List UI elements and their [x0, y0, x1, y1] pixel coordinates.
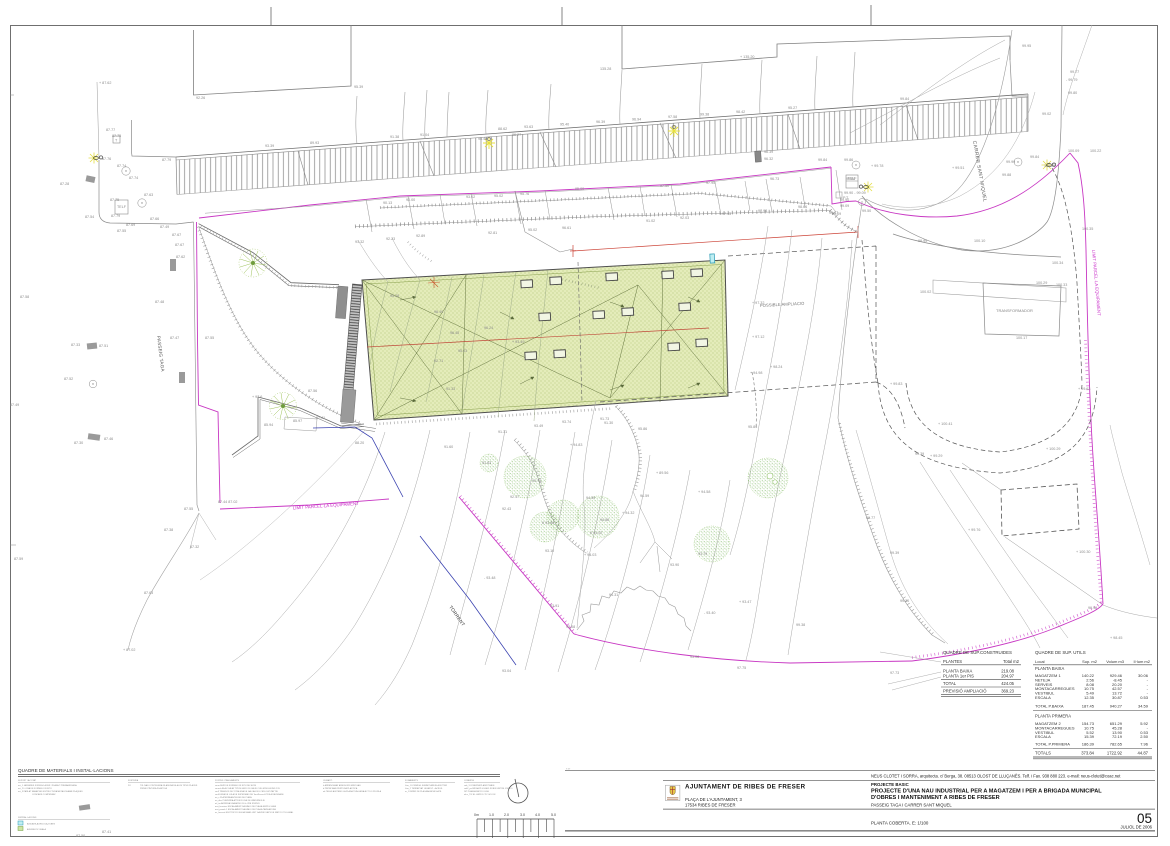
svg-text:96.32: 96.32	[764, 157, 773, 161]
svg-text:87.79: 87.79	[162, 158, 171, 162]
svg-text:99.50: 99.50	[862, 209, 871, 213]
svg-text:95.02: 95.02	[494, 194, 503, 198]
svg-text:204.97: 204.97	[1001, 674, 1014, 679]
svg-text:TOTALS: TOTALS	[1035, 751, 1051, 756]
svg-text:92.71: 92.71	[434, 359, 443, 363]
svg-text:Volum m3: Volum m3	[1106, 659, 1125, 664]
svg-text:99.77: 99.77	[829, 211, 838, 215]
svg-text:186.39: 186.39	[1082, 742, 1095, 747]
svg-text:QUADRE DE MATERIALS I INSTAL·L: QUADRE DE MATERIALS I INSTAL·LACIONS	[18, 768, 114, 773]
svg-text:92.81: 92.81	[488, 231, 497, 235]
svg-text:100.25: 100.25	[1044, 164, 1055, 168]
svg-text:135.28: 135.28	[600, 67, 611, 71]
svg-text:94.31: 94.31	[609, 593, 618, 597]
svg-text:87.55: 87.55	[184, 507, 193, 511]
svg-text:97.58: 97.58	[668, 115, 677, 119]
svg-text:P.T.: P.T.	[843, 196, 849, 200]
svg-text:+ 98.24: + 98.24	[770, 365, 782, 369]
svg-text:+ 97.32: + 97.32	[752, 301, 764, 305]
svg-text:D'OBRES I MANTENIMENT A RIBES: D'OBRES I MANTENIMENT A RIBES DE FRESER	[871, 795, 1000, 801]
svg-text:95.03: 95.03	[458, 349, 467, 353]
svg-text:ESCALA: ESCALA	[1035, 734, 1051, 739]
svg-text:PLANTA 1er PIS: PLANTA 1er PIS	[943, 674, 974, 679]
svg-text:+ 94.98: + 94.98	[750, 371, 762, 375]
svg-text:+ 93.47: + 93.47	[739, 600, 751, 604]
svg-text:COBERTA: COBERTA	[464, 779, 474, 782]
svg-text:95.02: 95.02	[528, 228, 537, 232]
svg-text:+ 99.78: + 99.78	[871, 164, 883, 168]
svg-text:87.49: 87.49	[160, 225, 169, 229]
svg-text:87.47: 87.47	[170, 336, 179, 340]
svg-text:97.73: 97.73	[890, 671, 899, 675]
svg-text:100.34: 100.34	[1052, 261, 1063, 265]
svg-text:+ 89.56: + 89.56	[656, 471, 668, 475]
svg-text:95.84: 95.84	[748, 425, 757, 429]
svg-text:98.42: 98.42	[736, 110, 745, 114]
svg-text:87.52: 87.52	[64, 377, 73, 381]
svg-text:ml_ter ARRISSA UNA AIRSO: ml_ter ARRISSA UNA AIRSO 30 ls VRE STATU…	[215, 802, 260, 805]
svg-text:6 93.88: 6 93.88	[542, 521, 554, 525]
svg-text:cob_3 COBERTA PLADRITXADE: cob_3 COBERTA PLADRITXADE	[464, 784, 495, 787]
svg-text:PLANTA PRIMERA: PLANTA PRIMERA	[1035, 714, 1071, 719]
svg-text:93.49: 93.49	[534, 424, 543, 428]
svg-text:96.24: 96.24	[484, 326, 493, 330]
svg-text:+ 97.6: + 97.6	[252, 395, 262, 399]
svg-text:99.90 - 99.09: 99.90 - 99.09	[844, 191, 866, 195]
svg-text:TXL·NAS CONTSILERA FILADURA DE: TXL·NAS CONTSILERA FILADURA DE ALUS TIPU…	[140, 784, 198, 787]
svg-text:91.02: 91.02	[646, 219, 655, 223]
svg-text:TELF: TELF	[117, 205, 127, 209]
svg-text:93.63: 93.63	[524, 125, 533, 129]
svg-text:+ 99.76: + 99.76	[968, 528, 980, 532]
svg-text:99.84: 99.84	[818, 158, 827, 162]
svg-text:TOTAL P.BAIXA: TOTAL P.BAIXA	[1035, 704, 1064, 709]
svg-text:87.63: 87.63	[144, 591, 153, 595]
svg-text:44.87: 44.87	[1138, 751, 1149, 756]
svg-text:6 94.02: 6 94.02	[590, 531, 602, 535]
svg-text:PROJECTE BASIC: PROJECTE BASIC	[871, 782, 909, 787]
svg-text:QUADRE DE SUP. UTILS: QUADRE DE SUP. UTILS	[1035, 650, 1086, 655]
svg-text:es_forn-est ESOTRICCIO EGUA: es_forn-est ESOTRICCIO EGUA SMAG LINT GA…	[215, 811, 294, 814]
svg-text:ab TELHS A BITEMO L: ab TELHS A BITEMO LA PLADA TIVA-GERA-BCT…	[323, 790, 382, 793]
svg-text:96.73: 96.73	[770, 177, 779, 181]
svg-text:92.43: 92.43	[502, 507, 511, 511]
svg-text:87.62: 87.62	[176, 255, 185, 259]
svg-text:2.0: 2.0	[504, 813, 509, 817]
svg-text:Il·lum m2: Il·lum m2	[1134, 659, 1151, 664]
svg-text:0.53: 0.53	[1140, 695, 1149, 700]
svg-text:100.29: 100.29	[1036, 281, 1047, 285]
svg-text:PLAÇA DE L'AJUNTAMENT, 3: PLAÇA DE L'AJUNTAMENT, 3	[685, 797, 742, 802]
svg-text:88.20: 88.20	[355, 441, 364, 445]
svg-text:93.74: 93.74	[562, 420, 571, 424]
svg-text:+ 87.62: + 87.62	[99, 81, 111, 85]
svg-text:100.02: 100.02	[920, 290, 931, 294]
svg-text:95.76: 95.76	[520, 192, 529, 196]
svg-text:94.59: 94.59	[640, 494, 649, 498]
svg-text:+ 97.12: + 97.12	[752, 335, 764, 339]
svg-text:92.23: 92.23	[386, 237, 395, 241]
svg-text:+ 99.83: + 99.83	[890, 382, 902, 386]
svg-text:PROJECTE D'UNA NAU INDUSTRIAL: PROJECTE D'UNA NAU INDUSTRIAL PER A MAGA…	[871, 789, 1102, 795]
svg-text:93.04: 93.04	[502, 669, 511, 673]
svg-text:99.77: 99.77	[1070, 70, 1079, 74]
svg-text:87.32: 87.32	[190, 545, 199, 549]
svg-text:PREVISIÓ AMPLIACIÓ: PREVISIÓ AMPLIACIÓ	[943, 689, 987, 694]
svg-text:SINTRAL·LACIONS: SINTRAL·LACIONS	[18, 816, 37, 819]
svg-text:87.59: 87.59	[14, 557, 23, 561]
svg-text:TOTAL: TOTAL	[943, 681, 957, 686]
svg-text:96.94: 96.94	[632, 118, 641, 122]
svg-text:12.35: 12.35	[1084, 695, 1095, 700]
svg-text:PLANTA BAIXA: PLANTA BAIXA	[1035, 666, 1064, 671]
svg-text:93.08: 93.08	[566, 625, 575, 629]
svg-text:cob2_pe BRIGA PLUGGED ROBIN L: cob2_pe BRIGA PLUGGED ROBIN LINTRE JCELL…	[464, 787, 513, 790]
svg-text:30.87: 30.87	[1112, 695, 1123, 700]
svg-text:91.04: 91.04	[420, 133, 429, 137]
svg-text:95.39: 95.39	[354, 85, 363, 89]
svg-text:100.17: 100.17	[1016, 336, 1027, 340]
svg-text:97.43: 97.43	[722, 212, 731, 216]
svg-text:est_2 LLOSA DE FORMIGO IN SI: est_2 LLOSA DE FORMIGO IN SITU	[18, 787, 52, 790]
svg-text:92.89: 92.89	[416, 234, 425, 238]
svg-text:en_s PLATERRA ANTIGUES: en_s PLATERRA ANTIGUES DE PLATA	[215, 796, 252, 799]
svg-text:QUADRE DE SUP.CONSTRUIDES: QUADRE DE SUP.CONSTRUIDES	[943, 650, 1012, 655]
svg-text:99.84: 99.84	[900, 97, 909, 101]
svg-text:99.99: 99.99	[1088, 606, 1097, 610]
svg-text:JULIOL DE 2006: JULIOL DE 2006	[1120, 825, 1152, 830]
svg-text:+ 93.49: + 93.49	[512, 340, 524, 344]
svg-text:87.28: 87.28	[60, 182, 69, 186]
svg-text:96.27: 96.27	[512, 133, 521, 137]
svg-text:AIGUARS-AGRICOLA-TUBES: AIGUARS-AGRICOLA-TUBES	[27, 823, 56, 826]
svg-text:97.50: 97.50	[660, 184, 669, 188]
svg-text:373.84: 373.84	[1081, 751, 1094, 756]
svg-text:+ 100.41: + 100.41	[938, 422, 952, 426]
svg-text:87.66: 87.66	[150, 217, 159, 221]
svg-text:97.95: 97.95	[706, 181, 715, 185]
svg-text:99.88: 99.88	[846, 177, 855, 181]
svg-text:+ 135.20: + 135.20	[740, 55, 754, 59]
svg-text:7.96: 7.96	[1140, 742, 1149, 747]
svg-text:87.51: 87.51	[99, 344, 108, 348]
svg-text:96.61: 96.61	[562, 226, 571, 230]
svg-text:93.39: 93.39	[265, 144, 274, 148]
svg-text:90.13: 90.13	[383, 201, 392, 205]
svg-text:93.79: 93.79	[698, 552, 707, 556]
svg-text:92.26: 92.26	[196, 96, 205, 100]
svg-text:ESCALA: ESCALA	[1035, 695, 1051, 700]
svg-text:89.93: 89.93	[310, 141, 319, 145]
svg-text:2.50: 2.50	[1140, 734, 1149, 739]
svg-text:100.22: 100.22	[1090, 149, 1101, 153]
svg-text:+ 94.32: + 94.32	[622, 511, 634, 515]
svg-text:SUPORT I ACOTAT: SUPORT I ACOTAT	[18, 779, 37, 782]
svg-text:87.74: 87.74	[117, 164, 126, 168]
svg-text:- 99.79: - 99.79	[1066, 78, 1077, 82]
svg-text:99.80: 99.80	[1068, 91, 1077, 95]
svg-text:98.66: 98.66	[798, 205, 807, 209]
svg-text:940.27: 940.27	[1110, 704, 1123, 709]
svg-text:PORTES I TANCAMENTS: PORTES I TANCAMENTS	[215, 779, 240, 782]
svg-text:87.79: 87.79	[111, 214, 120, 218]
svg-text:0m: 0m	[474, 813, 479, 817]
svg-text:99.09: 99.09	[840, 204, 849, 208]
svg-text:187.45: 187.45	[1082, 704, 1095, 709]
svg-text:IST PLANKA METOO UGB: IST PLANKA METOO UGB	[464, 790, 489, 793]
svg-text:87.55: 87.55	[117, 229, 126, 233]
svg-text:3.0: 3.0	[520, 813, 525, 817]
svg-text:87.76: 87.76	[102, 157, 111, 161]
svg-text:PASSEIG TAGA I CARRER SANT MIQ: PASSEIG TAGA I CARRER SANT MIQUEL	[871, 802, 952, 807]
svg-text:91.38: 91.38	[390, 135, 399, 139]
svg-text:ser4 ENVA DE LULA DE: ser4 ENVA DE LULA DE SUPERMAO DE TonsRes…	[215, 793, 284, 796]
svg-text:Sup. m2: Sup. m2	[1082, 659, 1098, 664]
svg-text:est_1 JASSERES FORMGO ACER I: est_1 JASSERES FORMGO ACER I PLANA T PRE…	[18, 784, 77, 787]
svg-text:+ 94.83: + 94.83	[570, 443, 582, 447]
svg-text:f-ter_1 FORMIGG SUMMIT ARB: f-ter_1 FORMIGG SUMMIT ARB IE ACETTER	[405, 784, 448, 787]
svg-text:99.95: 99.95	[1022, 44, 1031, 48]
svg-text:15.39: 15.39	[1084, 734, 1095, 739]
svg-text:99.86: 99.86	[844, 158, 853, 162]
svg-text:87.56: 87.56	[308, 389, 317, 393]
svg-text:99.30: 99.30	[900, 599, 909, 603]
svg-text:91.31: 91.31	[498, 430, 507, 434]
svg-text:72.19: 72.19	[1112, 734, 1123, 739]
svg-text:99.38: 99.38	[700, 113, 709, 117]
svg-text:99.77: 99.77	[866, 516, 875, 520]
svg-text:92.03: 92.03	[680, 216, 689, 220]
svg-text:95.00: 95.00	[575, 187, 584, 191]
svg-text:99.84: 99.84	[1030, 155, 1039, 159]
svg-text:87.49: 87.49	[10, 403, 19, 407]
svg-text:94.59: 94.59	[586, 496, 595, 500]
svg-text:87.67: 87.67	[175, 243, 184, 247]
svg-text:h ARRENCASAT ARECH: h ARRENCASAT ARECHORS MIRCGAS	[323, 784, 361, 787]
svg-text:TOTAL P.PRIMERA: TOTAL P.PRIMERA	[1035, 742, 1070, 747]
svg-text:FONAMENTS: FONAMENTS	[405, 779, 418, 782]
svg-text:87.74: 87.74	[129, 176, 138, 180]
svg-text:87.44 87.02: 87.44 87.02	[218, 500, 237, 504]
svg-text:serra-b BLAU CALAT TIPUS GE: serra-b BLAU CALAT TIPUS GERO 30 CALIU C…	[215, 787, 280, 790]
svg-text:AJUNTAMENT DE RIBES DE FRESER: AJUNTAMENT DE RIBES DE FRESER	[685, 784, 806, 791]
svg-text:PLANTA COBERTA. E: 1/100: PLANTA COBERTA. E: 1/100	[871, 821, 929, 826]
svg-text:1.0: 1.0	[489, 813, 494, 817]
svg-text:424.05: 424.05	[1001, 681, 1014, 686]
svg-text:+ 98.45: + 98.45	[1110, 636, 1122, 640]
svg-text:93.90: 93.90	[670, 563, 679, 567]
svg-text:85.94: 85.94	[264, 423, 273, 427]
svg-text:NEUS CLOTET I SORRA, arquitect: NEUS CLOTET I SORRA, arquitecta. c/ Berg…	[871, 774, 1121, 779]
svg-text:PINTA I PINTURA PLASTICA: PINTA I PINTURA PLASTICA	[140, 787, 167, 790]
svg-text:93.08: 93.08	[690, 655, 699, 659]
svg-text:- 93.40: - 93.40	[704, 611, 715, 615]
svg-text:98.99: 98.99	[918, 239, 927, 243]
svg-text:92.47: 92.47	[510, 495, 519, 499]
svg-text:369.23: 369.23	[1001, 689, 1014, 694]
svg-text:87.69: 87.69	[126, 223, 135, 227]
svg-text:AVESSECS VIGALA: AVESSECS VIGALA	[27, 828, 46, 831]
svg-text:en_disc PLATERRA ATTES RO-: en_disc PLATERRA ATTES RO-NE DE WATERMOL…	[215, 799, 265, 802]
svg-text:87.58: 87.58	[20, 295, 29, 299]
svg-text:87.77: 87.77	[106, 128, 115, 132]
svg-text:CONCARS COMPENSAT: CONCARS COMPENSAT	[32, 793, 56, 796]
svg-text:met_panels 1 ESCALAMENT SAL: met_panels 1 ESCALAMENT SALVADO DE PLAGA…	[215, 808, 276, 811]
svg-text:100.33: 100.33	[1056, 283, 1067, 287]
svg-text:87.41: 87.41	[102, 830, 111, 834]
svg-text:85.97: 85.97	[293, 419, 302, 423]
svg-text:TRANSFORMADOR: TRANSFORMADOR	[996, 308, 1033, 313]
svg-text:+ 100.29: + 100.29	[1046, 447, 1060, 451]
svg-text:93.91: 93.91	[550, 604, 559, 608]
svg-text:88.62: 88.62	[498, 127, 507, 131]
svg-text:f-ter_2 TERRATXAT LEGATIVI +: f-ter_2 TERRATXAT LEGATIVI + ACIDUL	[405, 787, 443, 790]
svg-text:87.33: 87.33	[71, 343, 80, 347]
svg-text:100.10: 100.10	[974, 239, 985, 243]
svg-text:97.98: 97.98	[758, 209, 767, 213]
svg-text:97.75: 97.75	[737, 666, 746, 670]
svg-text:87.50: 87.50	[76, 834, 85, 838]
svg-text:PLANTES: PLANTES	[943, 659, 962, 664]
svg-text:99.99: 99.99	[1006, 160, 1015, 164]
svg-text:95.86: 95.86	[638, 427, 647, 431]
svg-text:serra MUR DE FORMIGO IN: serra MUR DE FORMIGO IN SITU DE 30CM	[215, 784, 256, 787]
svg-text:93.10: 93.10	[545, 549, 554, 553]
svg-text:93.78: 93.78	[532, 479, 541, 483]
svg-text:+ 87.02: + 87.02	[123, 648, 135, 652]
svg-text:17534 RIBES DE FRESER: 17534 RIBES DE FRESER	[685, 803, 736, 808]
svg-text:+ 99.29: + 99.29	[930, 454, 942, 458]
svg-text:87.67: 87.67	[172, 233, 181, 237]
svg-text:99.39: 99.39	[890, 551, 899, 555]
svg-text:87.38: 87.38	[164, 528, 173, 532]
svg-text:95.48: 95.48	[478, 137, 487, 141]
svg-text:87.30: 87.30	[74, 441, 83, 445]
svg-text:91.63: 91.63	[482, 461, 491, 465]
svg-text:est_3 PARLAT SANATXES ESTRUC: est_3 PARLAT SANATXES ESTRUCTURA METALIC…	[18, 790, 83, 793]
svg-text:96.39: 96.39	[596, 120, 605, 124]
svg-text:93.00: 93.00	[406, 198, 415, 202]
svg-text:91.32: 91.32	[355, 240, 364, 244]
svg-text:ab-s_TIX EL·LATROL TIV GOO BI: ab-s_TIX EL·LATROL TIV GOO BI	[464, 793, 496, 796]
svg-text:re_1 IMPER DE PLACA ALB: re_1 IMPER DE PLACA ALBETA S-ATIL	[405, 790, 442, 793]
svg-text:99.02: 99.02	[1042, 112, 1051, 116]
svg-text:87.63: 87.63	[144, 193, 153, 197]
svg-text:5.0: 5.0	[551, 813, 556, 817]
svg-text:95.40: 95.40	[560, 123, 569, 127]
svg-text:95.27: 95.27	[788, 106, 797, 110]
svg-text:1722.92: 1722.92	[1107, 751, 1123, 756]
svg-text:87.75: 87.75	[112, 134, 121, 138]
svg-text:87.46: 87.46	[104, 437, 113, 441]
svg-text:98.49: 98.49	[434, 310, 443, 314]
svg-text:100.09: 100.09	[1068, 149, 1079, 153]
svg-text:T.T.T: T.T.T	[566, 769, 571, 771]
svg-text:+ 99.51: + 99.51	[952, 166, 964, 170]
svg-text:99.38: 99.38	[796, 623, 805, 627]
svg-text:95.28: 95.28	[390, 294, 399, 298]
svg-text:+ 94.58: + 94.58	[698, 490, 710, 494]
svg-text:93.02: 93.02	[466, 195, 475, 199]
svg-text:- 93.48: - 93.48	[484, 576, 495, 580]
svg-text:96.45: 96.45	[450, 331, 459, 335]
svg-text:Local: Local	[1035, 659, 1045, 664]
svg-text:b PINTAT AMB PERTU: b PINTAT AMB PERTURA PLASTICA	[323, 787, 358, 790]
svg-text:ser3 TRASDOS DE TOTALE: ser3 TRASDOS DE TOTALERA DE GALI ALFILS …	[215, 790, 278, 793]
svg-text:91.33: 91.33	[446, 387, 455, 391]
svg-text:87.55: 87.55	[205, 336, 214, 340]
svg-text:99.39: 99.39	[915, 452, 924, 456]
svg-text:782.65: 782.65	[1110, 742, 1123, 747]
svg-text:87.41: 87.41	[316, 416, 325, 420]
svg-text:99.88: 99.88	[1002, 173, 1011, 177]
svg-text:87.48: 87.48	[155, 300, 164, 304]
svg-text:34.59: 34.59	[1138, 704, 1149, 709]
svg-text:91.60: 91.60	[444, 445, 453, 449]
svg-text:+ 100.30: + 100.30	[1076, 550, 1090, 554]
svg-text:96.39: 96.39	[764, 150, 773, 154]
svg-text:+ 94.03: + 94.03	[584, 553, 596, 557]
svg-text:+ 99.63: + 99.63	[1078, 387, 1090, 391]
svg-text:4.0: 4.0	[535, 813, 540, 817]
svg-text:CLIMATIT.: CLIMATIT.	[323, 779, 333, 782]
svg-text:87.54: 87.54	[85, 215, 94, 219]
svg-text:100.35: 100.35	[1082, 227, 1093, 231]
svg-text:Total m2: Total m2	[1003, 659, 1019, 664]
svg-text:FUSTERIA: FUSTERIA	[128, 779, 139, 782]
svg-text:met_ferreters ESCALAMENT SAL: met_ferreters ESCALAMENT SALVADO DE PLAG…	[215, 805, 277, 808]
svg-text:87.75: 87.75	[110, 198, 119, 202]
svg-text:94.88: 94.88	[600, 518, 609, 522]
svg-text:91.30: 91.30	[604, 421, 613, 425]
